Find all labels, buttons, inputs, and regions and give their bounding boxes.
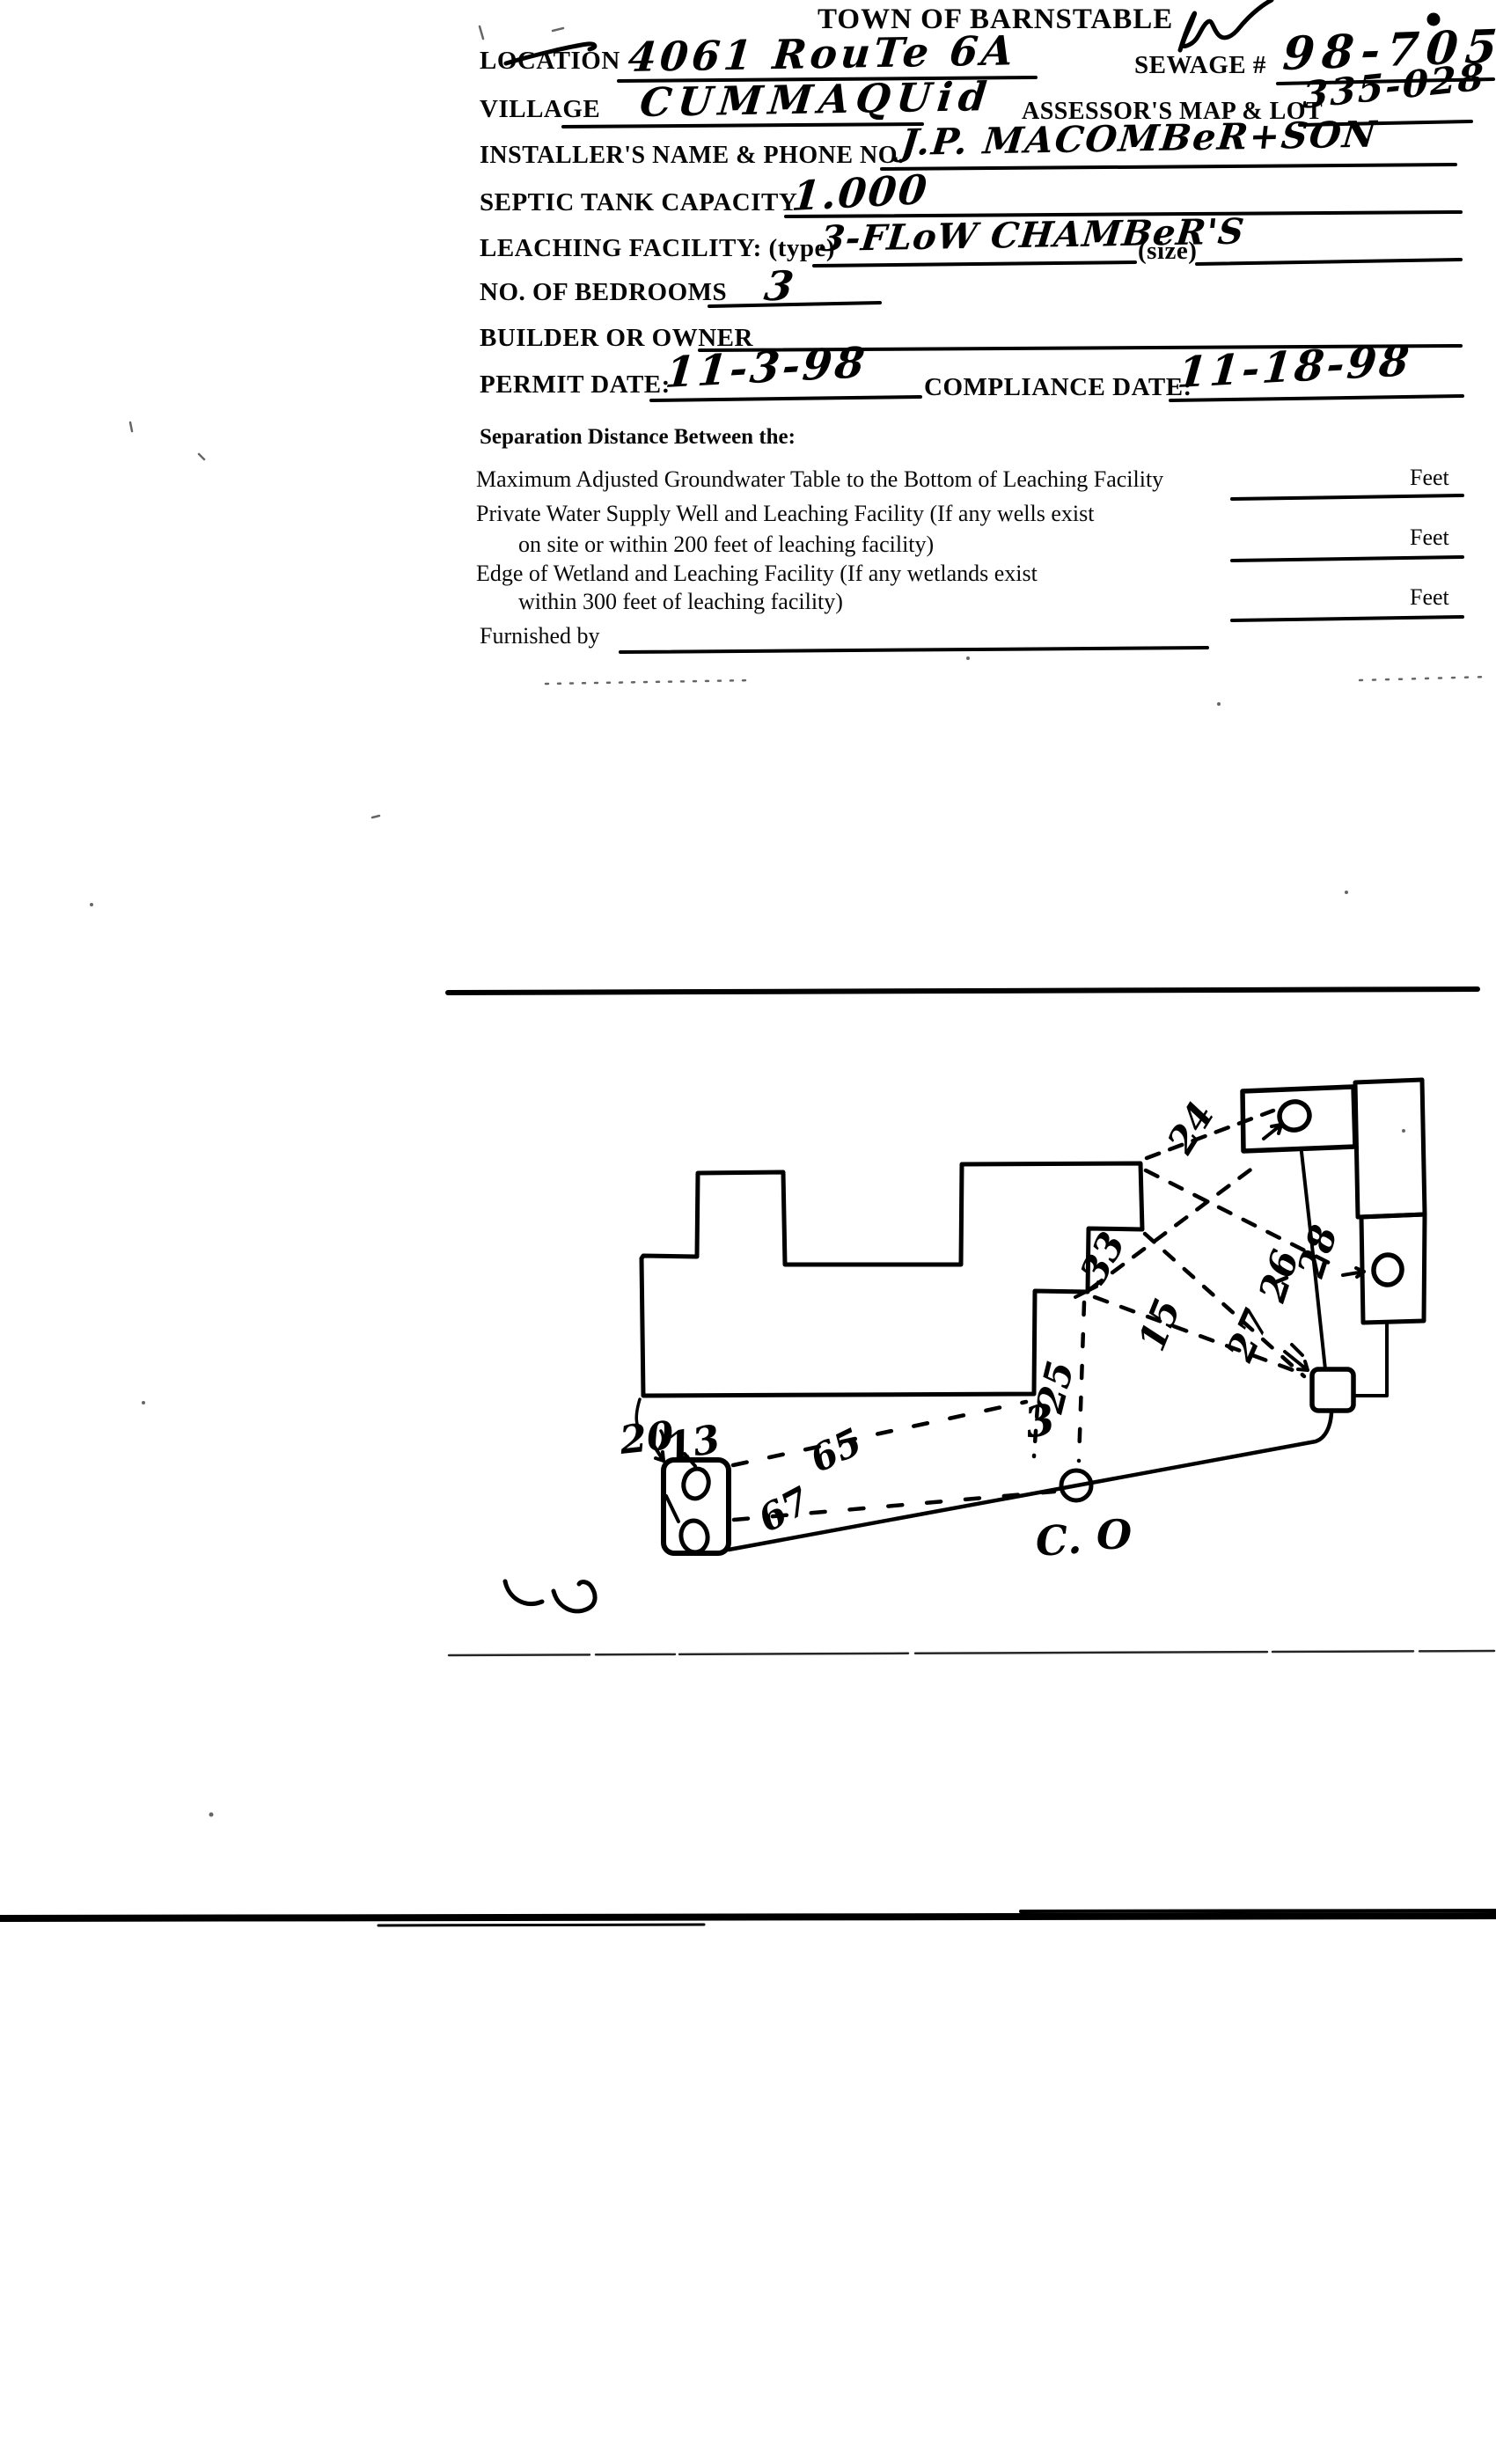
divider-line-bottom-faint [449, 1651, 1494, 1655]
distance-label-13: 13 [663, 1417, 723, 1470]
house-outline [642, 1163, 1142, 1396]
well-circle-2 [678, 1519, 710, 1555]
leach-circle-arrow [1343, 1268, 1364, 1277]
divider-line-top [448, 989, 1478, 993]
well-box-slash-mark [666, 1496, 678, 1522]
distance-label-15: 15 [1130, 1293, 1189, 1357]
scan-specks [90, 26, 1489, 1817]
scan-ink-overlay: 20 13 65 67 25 3 33 15 27 26 28 24 C. O [0, 0, 1496, 2464]
distance-label-24: 24 [1158, 1095, 1222, 1162]
distance-label-67: 67 [752, 1478, 818, 1541]
scanned-septic-permit-form: TOWN OF BARNSTABLE LOCATION SEWAGE # VIL… [0, 0, 1496, 2464]
leach-area-upper-box [1355, 1080, 1425, 1217]
leach-area-lower-box [1361, 1214, 1425, 1323]
septic-tank-arrow [1264, 1125, 1281, 1139]
tie-line-25 [1079, 1302, 1084, 1461]
well-circle-1 [680, 1466, 712, 1501]
location-strikethrough [506, 44, 595, 63]
distance-label-65: 65 [803, 1419, 869, 1481]
distribution-box [1312, 1369, 1353, 1411]
site-sketch [505, 1080, 1425, 1611]
distance-label-33: 33 [1072, 1225, 1134, 1291]
form-underlines [563, 77, 1493, 652]
septic-tank-box [1243, 1087, 1355, 1151]
cleanout-label-o: O [1096, 1511, 1132, 1558]
tie-line-65 [733, 1402, 1026, 1465]
dbox-to-leach-connector [1353, 1324, 1387, 1396]
cleanout-label-c: C. [1034, 1514, 1082, 1565]
divider-line-thick-upper-fringe [1021, 1910, 1496, 1911]
pen-scribble-mark [1180, 0, 1272, 50]
pen-scribble-bottom [505, 1581, 595, 1611]
ink-dot [1427, 13, 1441, 26]
well-box [664, 1460, 729, 1553]
leach-area-cover-circle [1371, 1252, 1404, 1287]
divider-line-thick [0, 1916, 1496, 1918]
distance-label-27: 27 [1218, 1303, 1279, 1368]
divider-line-thick-lower-fringe [378, 1925, 704, 1925]
